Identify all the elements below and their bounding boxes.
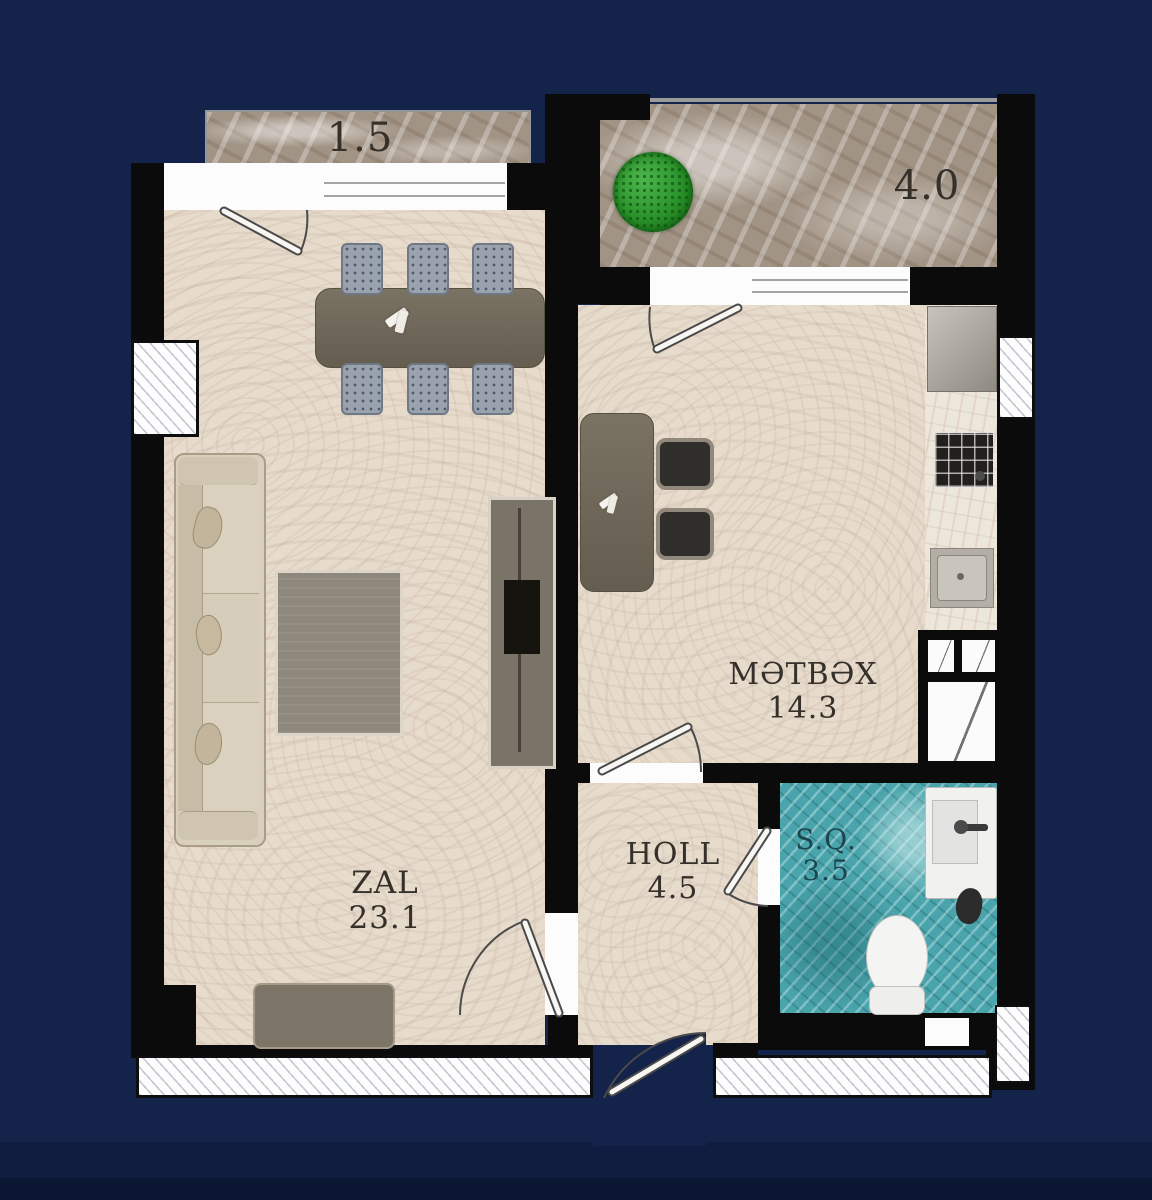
kitchen-chair <box>656 508 714 560</box>
room-area: 23.1 <box>300 901 470 936</box>
kitchen-sink-drain <box>957 573 964 580</box>
door-gap-hall-bath <box>758 829 780 905</box>
bath-sink <box>925 787 997 899</box>
kitchen-label: MƏTBƏX 14.3 <box>678 658 928 725</box>
wall-kitchen-band-right-block <box>910 267 997 305</box>
table-decor <box>385 305 415 335</box>
wall-hatch-band-right <box>713 1055 992 1098</box>
wall-slot-small <box>925 1018 969 1046</box>
window-band-living-top <box>164 163 507 210</box>
dining-chair <box>472 243 514 295</box>
rug <box>275 570 403 736</box>
wall-slot-right <box>995 1005 1031 1083</box>
vent-cell-bottom <box>928 682 995 761</box>
kitchen-table-decor <box>599 491 623 515</box>
room-area: 3.5 <box>783 855 869 886</box>
bathroom-label: S.Q. 3.5 <box>783 824 869 887</box>
room-name: HOLL <box>626 837 721 872</box>
room-area: 14.3 <box>678 692 928 726</box>
background-strip-mid <box>0 1142 1152 1178</box>
dining-chair <box>472 363 514 415</box>
wall-living-band-right-block <box>507 163 545 210</box>
stove <box>935 433 993 487</box>
balcony-right-label: 4.0 <box>852 164 1002 209</box>
dining-chair <box>407 243 449 295</box>
plant <box>613 152 693 232</box>
console-bench <box>253 983 395 1049</box>
window-band-kitchen-top <box>650 267 910 305</box>
living-room-label: ZAL 23.1 <box>300 866 470 935</box>
hall-label: HOLL 4.5 <box>593 838 753 905</box>
balcony-right-rail <box>600 98 997 102</box>
toilet-tank <box>869 986 925 1015</box>
dining-table <box>315 288 545 368</box>
wall-center-column <box>545 94 600 304</box>
hall-floor <box>578 783 758 1045</box>
wall-kitchen-band-left-block <box>600 267 650 305</box>
stove-knob <box>975 471 985 481</box>
tv-unit <box>488 497 556 769</box>
wall-left-exterior <box>131 163 164 1058</box>
sofa <box>174 453 266 847</box>
wall-center-header <box>545 94 650 120</box>
door-gap-living-hall <box>545 913 578 1015</box>
wall-bath-left-upper <box>758 783 780 829</box>
room-name: ZAL <box>351 865 419 901</box>
wall-kitchen-hall-bath-top <box>703 763 1035 783</box>
dining-chair <box>341 363 383 415</box>
room-name: S.Q. <box>795 823 857 856</box>
plant-texture <box>613 152 693 232</box>
room-area: 4.5 <box>593 872 753 906</box>
vent-cell-top-left <box>928 640 954 672</box>
room-name: MƏTBƏX <box>728 657 877 692</box>
sofa-armrest-bottom <box>178 811 258 840</box>
door-gap-kitchen-hall <box>590 763 703 783</box>
wall-bottom-bath <box>758 1013 1035 1050</box>
bath-faucet-knob <box>954 820 968 834</box>
kitchen-sink <box>930 548 994 608</box>
kitchen-chair <box>656 438 714 490</box>
bath-sink-bowl <box>932 800 978 864</box>
floor-plan-canvas: 1.5 4.0 ZAL 23.1 MƏTBƏX 14.3 HOLL 4.5 S.… <box>0 0 1152 1200</box>
entrance-door-swing <box>593 1033 706 1146</box>
vent-cell-top-right <box>962 640 995 672</box>
window-left-wall <box>131 340 199 437</box>
dining-chair <box>341 243 383 295</box>
wall-kitchen-hall-stub <box>578 763 590 783</box>
window-right-wall <box>997 335 1035 420</box>
tv-screen <box>504 580 540 654</box>
balcony-left-label: 1.5 <box>205 116 515 161</box>
fridge <box>927 306 997 392</box>
sofa-armrest-top <box>178 457 258 486</box>
wall-right-exterior-upper <box>997 94 1035 335</box>
wall-hatch-band-left <box>136 1055 593 1098</box>
dining-chair <box>407 363 449 415</box>
background-strip-bottom <box>0 1178 1152 1200</box>
wall-right-exterior-lower <box>997 420 1035 1090</box>
